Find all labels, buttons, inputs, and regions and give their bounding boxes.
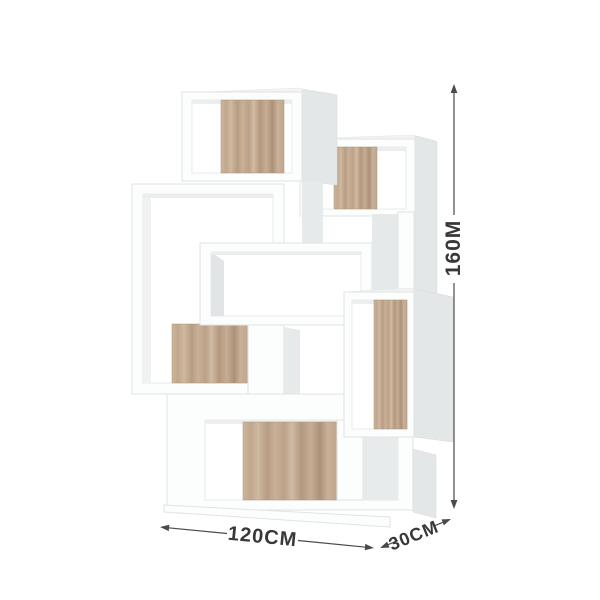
box-left-tall-inner-wall (143, 194, 151, 383)
width-dimension-line-left (167, 528, 227, 534)
width-dimension-label: 120CM (227, 523, 298, 552)
width-dimension-line-right (298, 541, 366, 548)
box-top-side-face (302, 90, 337, 185)
depth-dimension-label: 30CM (386, 516, 442, 554)
center-partition-side (284, 327, 300, 400)
box-right-middle (344, 288, 453, 442)
arrow-left-icon (160, 525, 169, 531)
oak-back-panel (172, 324, 248, 383)
box-left-tall-inner-shadow (143, 194, 273, 198)
height-dimension-label: 160M (442, 220, 465, 277)
product-dimension-diagram: 160M 120CM 30CM (0, 0, 600, 600)
arrow-up-right-icon (442, 519, 452, 525)
arrow-down-icon (451, 500, 458, 509)
depth-dimension: 30CM (380, 516, 451, 554)
arrow-right-icon (365, 544, 374, 550)
box-upper-right-side-face (415, 136, 437, 296)
arrow-up-icon (451, 84, 458, 93)
box-right-middle-side-face (414, 289, 453, 442)
oak-back-panel (221, 100, 284, 173)
vertical-support-column (302, 181, 323, 243)
right-divider-shadow (372, 214, 398, 292)
width-dimension: 120CM (160, 523, 374, 552)
staggered-bookcase (132, 88, 453, 527)
right-divider-front (398, 212, 414, 292)
oak-back-panel (243, 422, 337, 500)
box-bottom-side-face (413, 449, 436, 518)
box-center-inner-shadow (211, 252, 361, 255)
oak-back-panel (334, 147, 377, 209)
box-center-opening (211, 252, 361, 316)
box-center-inner-wall (211, 252, 224, 316)
center-partition-front (248, 325, 284, 400)
bookcase-diagram-canvas: 160M 120CM 30CM (0, 0, 600, 600)
center-partition (248, 325, 300, 400)
oak-back-panel (374, 300, 407, 429)
right-divider (372, 212, 414, 292)
